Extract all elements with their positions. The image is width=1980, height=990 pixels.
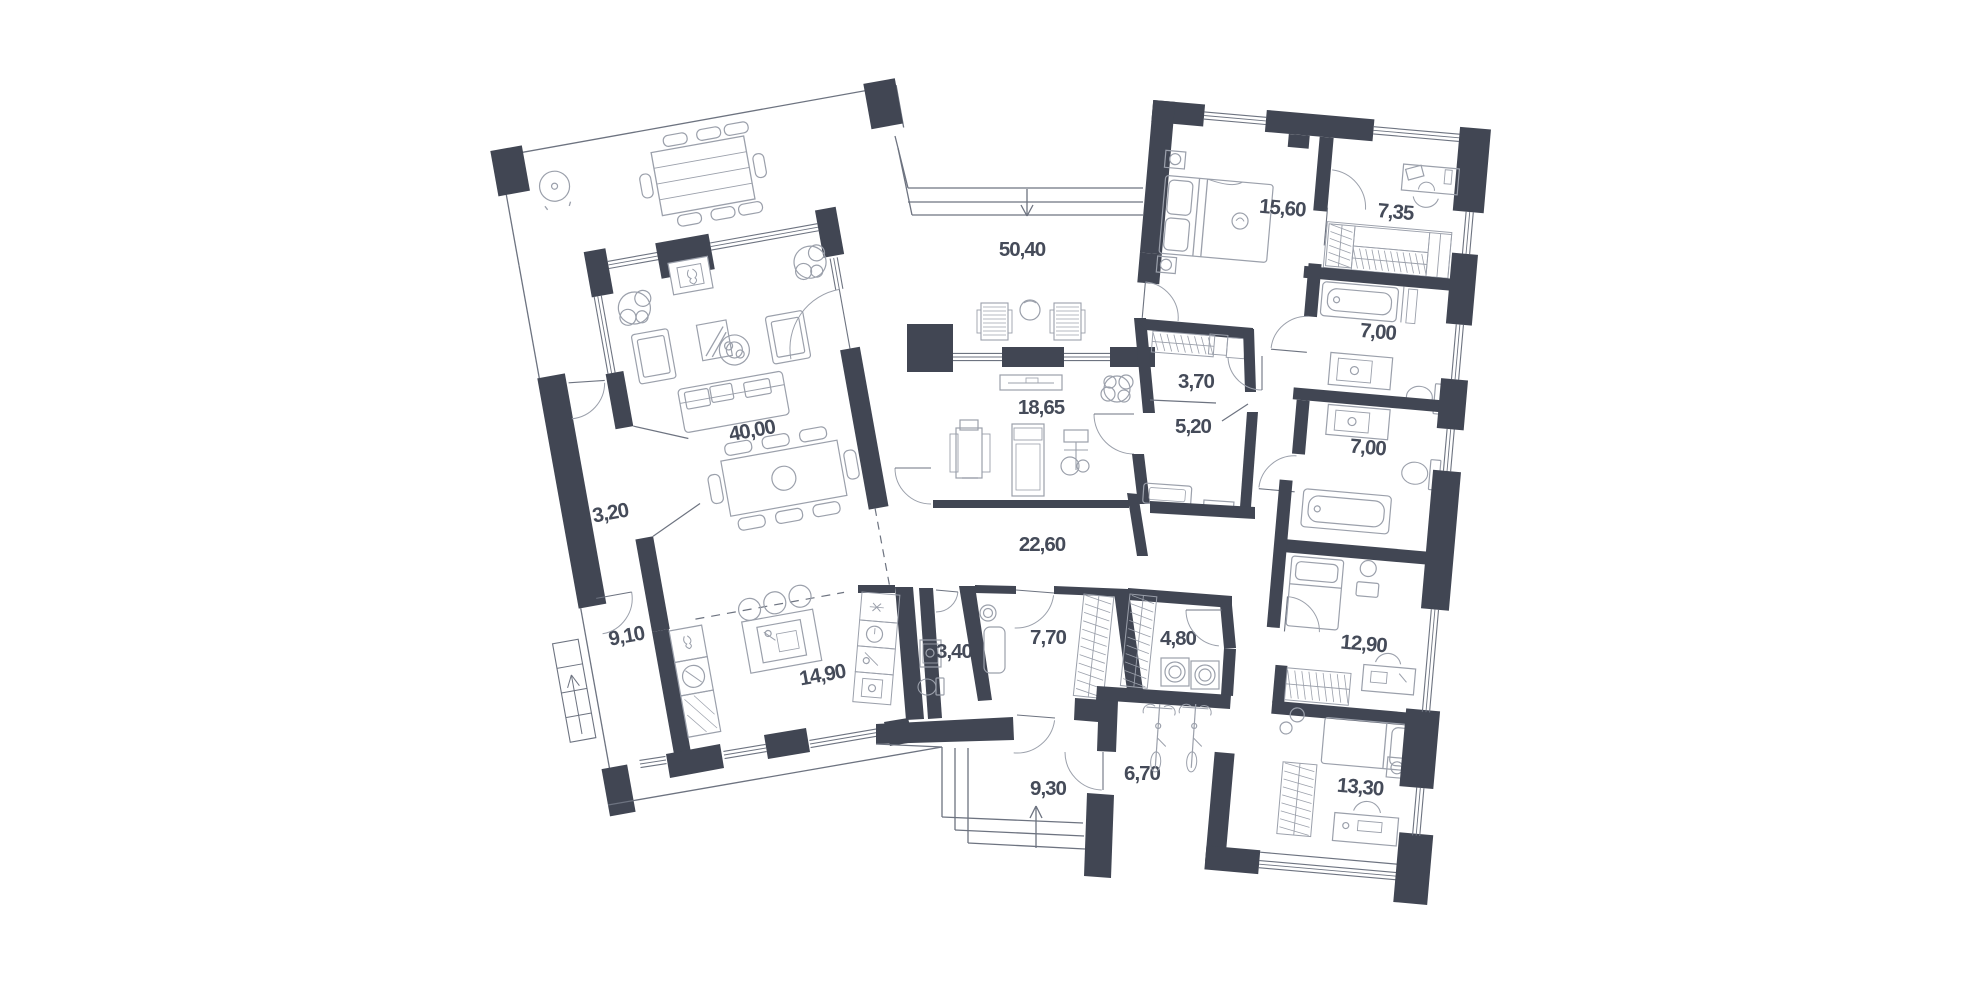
svg-text:7,00: 7,00 bbox=[1349, 435, 1387, 461]
svg-text:3,40: 3,40 bbox=[936, 640, 972, 663]
svg-text:4,80: 4,80 bbox=[1160, 627, 1196, 650]
svg-text:50,40: 50,40 bbox=[999, 238, 1046, 261]
svg-text:7,00: 7,00 bbox=[1359, 319, 1397, 345]
svg-text:7,35: 7,35 bbox=[1377, 199, 1415, 225]
svg-text:12,90: 12,90 bbox=[1340, 630, 1389, 657]
svg-text:13,30: 13,30 bbox=[1336, 774, 1385, 801]
svg-text:7,70: 7,70 bbox=[1030, 626, 1066, 649]
svg-text:5,20: 5,20 bbox=[1175, 415, 1211, 438]
svg-text:18,65: 18,65 bbox=[1018, 396, 1065, 419]
svg-text:22,60: 22,60 bbox=[1019, 533, 1066, 556]
svg-text:9,30: 9,30 bbox=[1030, 777, 1066, 800]
svg-text:3,70: 3,70 bbox=[1178, 370, 1214, 393]
svg-text:15,60: 15,60 bbox=[1258, 195, 1307, 222]
